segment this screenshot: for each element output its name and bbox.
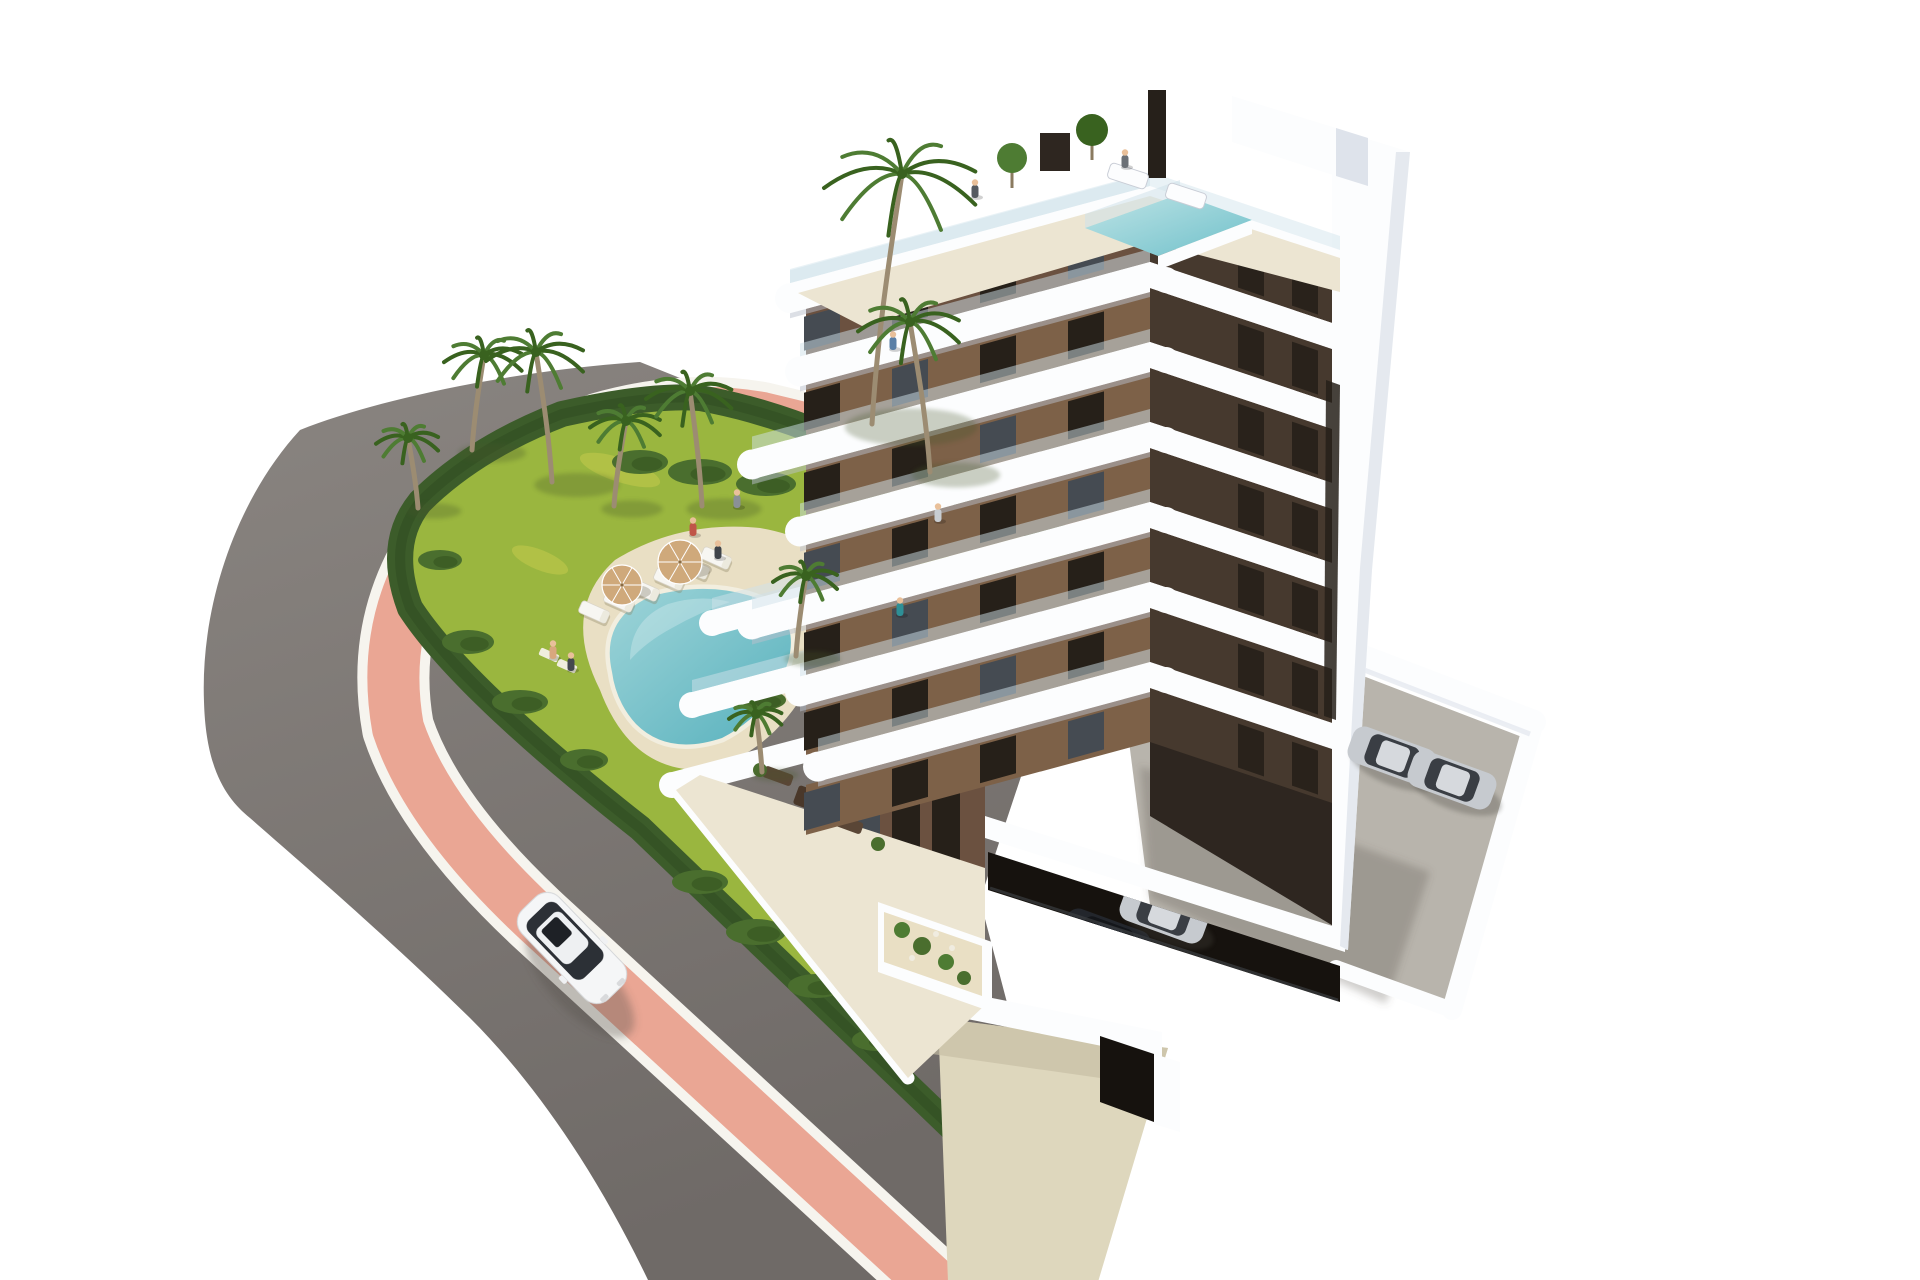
balcony-rounded-cap	[803, 752, 833, 782]
right-balcony-curl	[1153, 427, 1179, 453]
person-body	[715, 546, 722, 559]
parasol-pole	[678, 560, 681, 563]
right-facade-window	[1292, 742, 1318, 795]
palm-shadow	[458, 443, 526, 462]
stair-bulkhead-side	[1336, 128, 1368, 186]
bush-shade	[692, 877, 723, 891]
balcony-rounded-cap	[737, 449, 767, 479]
right-facade-window	[1292, 582, 1318, 635]
palm-crown	[801, 571, 811, 581]
person-head	[935, 503, 941, 509]
person-head	[715, 540, 721, 546]
bush-shade	[747, 926, 780, 942]
terrace-slab-2-cap	[679, 692, 705, 718]
balcony-rounded-cap	[737, 609, 767, 639]
patio-pebble	[909, 955, 915, 961]
roof-bbq-box	[1040, 133, 1070, 171]
palm-shadow	[845, 408, 978, 445]
balcony-rounded-cap	[785, 517, 815, 547]
bush-shade	[632, 457, 663, 471]
right-balcony-curl	[1153, 267, 1179, 293]
palm-shadow	[687, 498, 762, 519]
person-head	[1122, 149, 1128, 155]
palm-shadow	[912, 463, 1000, 488]
render-canvas	[0, 0, 1920, 1280]
person-head	[690, 517, 696, 523]
bush-shade	[460, 637, 489, 651]
bush	[672, 870, 728, 894]
right-facade-window	[1238, 324, 1264, 377]
right-facade-window	[1238, 644, 1264, 697]
bush-shade	[433, 556, 457, 568]
roof-potted-tree	[1076, 114, 1108, 146]
person-body	[890, 337, 897, 350]
person-body	[550, 646, 557, 659]
person-head	[568, 652, 574, 658]
palm-crown	[685, 386, 695, 396]
right-balcony-curl	[1153, 507, 1179, 533]
person-body	[690, 523, 697, 536]
palm-crown	[751, 709, 761, 719]
bush-shade	[512, 697, 543, 711]
parasol-pole	[620, 583, 623, 586]
patio-plant	[957, 971, 971, 985]
palm-crown	[531, 347, 541, 357]
person-body	[734, 495, 741, 508]
person-body	[897, 603, 904, 616]
person-head	[897, 597, 903, 603]
bush	[442, 630, 494, 654]
person-body	[972, 185, 979, 198]
right-facade-window	[1292, 502, 1318, 555]
palm-crown	[621, 416, 631, 426]
palm-crown	[897, 169, 907, 179]
bush	[418, 550, 462, 570]
palm-shadow	[535, 473, 620, 497]
gate-pillar	[1154, 1054, 1180, 1132]
patio-plant	[938, 954, 954, 970]
person-body	[1122, 155, 1129, 168]
person-body	[935, 509, 942, 522]
person-head	[972, 179, 978, 185]
balcony-rounded-cap	[785, 357, 815, 387]
person-body	[568, 658, 575, 671]
roof-chimney	[1148, 90, 1166, 178]
roof-potted-tree	[997, 143, 1027, 173]
palm-shadow	[784, 651, 840, 667]
bush	[492, 690, 548, 714]
balcony-rounded-cap	[775, 283, 805, 313]
person-head	[890, 331, 896, 337]
patio-plant	[913, 937, 931, 955]
right-facade-window	[1238, 484, 1264, 537]
patio-pebble	[933, 931, 939, 937]
balcony-rounded-cap	[785, 677, 815, 707]
bush-shade	[690, 466, 725, 482]
bush	[560, 749, 608, 771]
right-balcony-curl	[1153, 347, 1179, 373]
palm-shadow	[601, 500, 662, 517]
person-head	[550, 640, 556, 646]
right-facade-window	[1238, 724, 1264, 777]
terrace-plant	[871, 837, 885, 851]
palm-shadow	[407, 503, 461, 518]
right-facade-window	[1292, 662, 1318, 715]
bush-shade	[577, 755, 603, 768]
patio-pebble	[949, 945, 955, 951]
render-image	[0, 0, 1920, 1280]
person-head	[734, 489, 740, 495]
patio-plant	[894, 922, 910, 938]
right-facade-window	[1238, 404, 1264, 457]
right-facade-window	[1238, 564, 1264, 617]
right-balcony-curl	[1153, 667, 1179, 693]
terrace-slab-1-cap	[699, 610, 725, 636]
palm-crown	[403, 433, 413, 443]
right-balcony-curl	[1153, 587, 1179, 613]
palm-crown	[905, 317, 915, 327]
right-facade-window	[1292, 342, 1318, 395]
right-facade-window	[1292, 422, 1318, 475]
